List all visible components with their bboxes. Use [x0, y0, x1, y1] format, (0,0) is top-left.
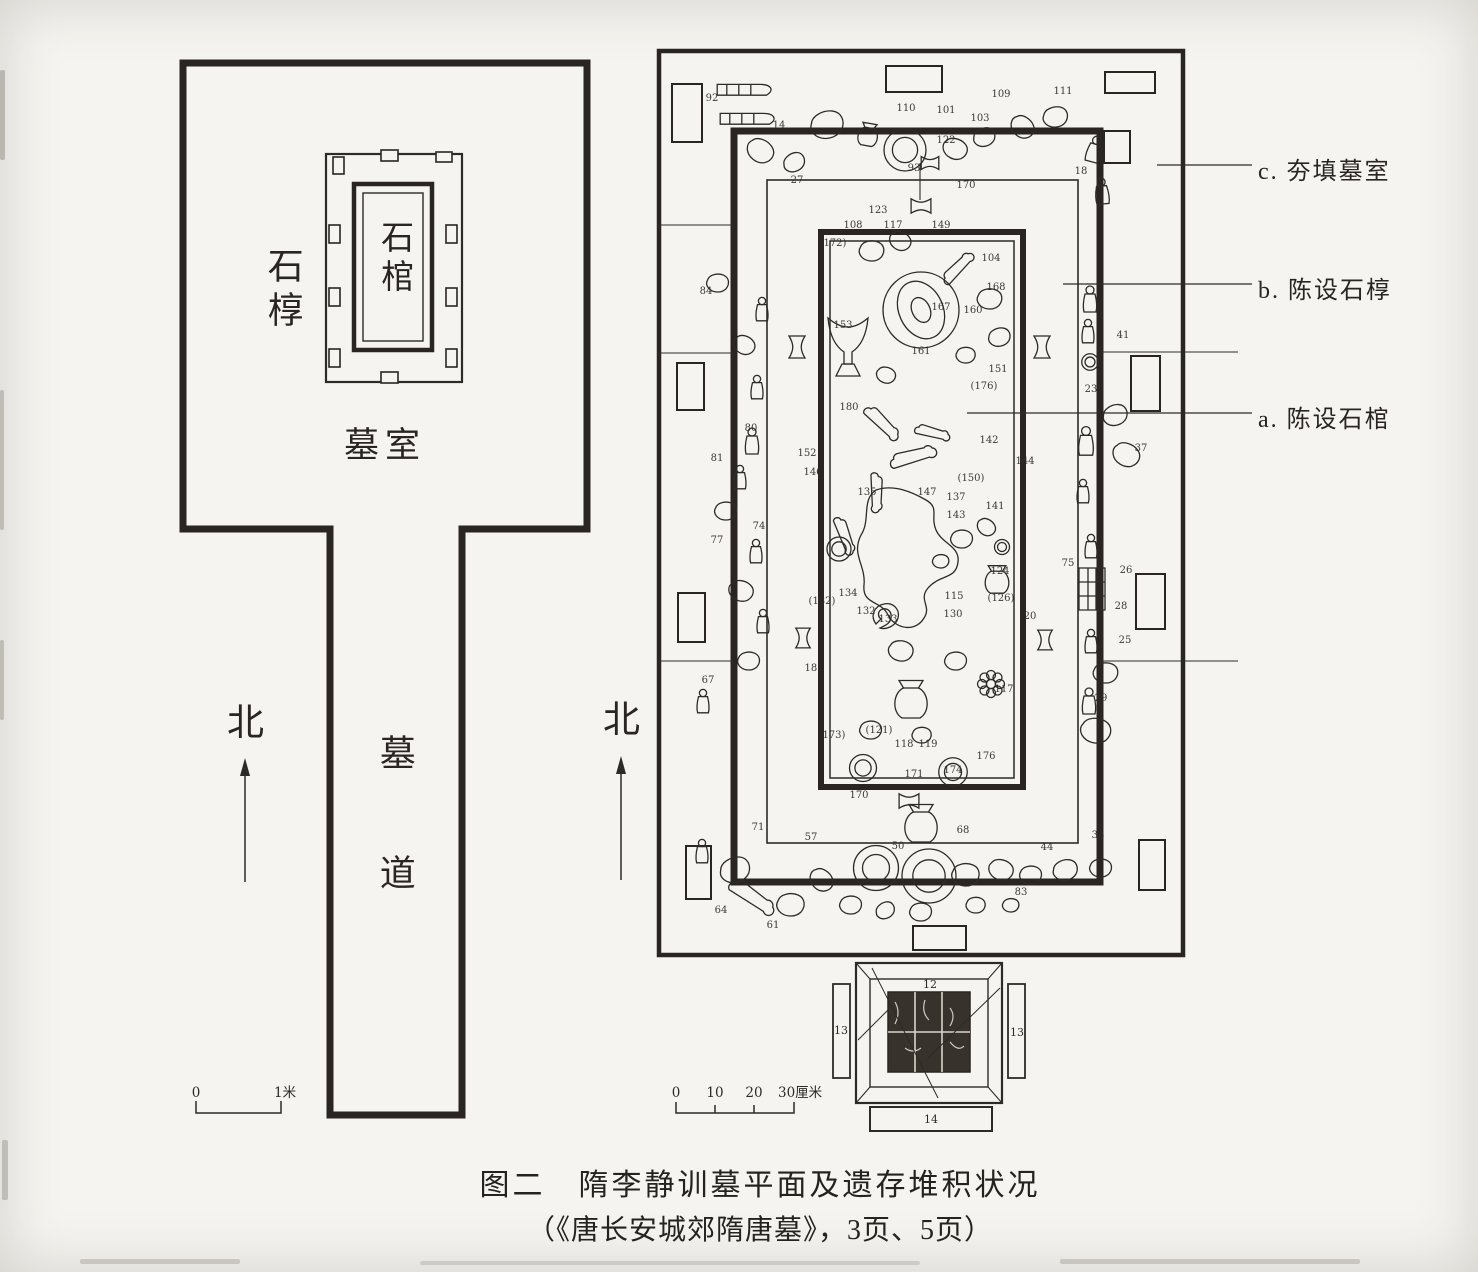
artifact-number: 146 — [803, 467, 822, 478]
scan-bottom-mark — [80, 1259, 240, 1264]
artifact-shape-sled — [720, 113, 774, 124]
artifact-shape-bone — [940, 247, 976, 288]
artifact-shape-blob — [807, 108, 846, 142]
label-stone-coffin: 石棺 — [376, 220, 411, 298]
artifact-number: 103 — [970, 113, 989, 124]
gate-number-bottom: 14 — [924, 1113, 938, 1126]
artifact-number: 130 — [943, 609, 962, 620]
artifact-shape-bowtie — [796, 628, 810, 648]
scanned-figure-page: 0 1米 — [0, 0, 1478, 1272]
artifact-number: 161 — [911, 346, 930, 357]
left-scale-bar: 0 1米 — [192, 1085, 297, 1113]
scan-edge-mark — [0, 390, 4, 530]
artifact-shape-figurine — [1077, 479, 1089, 502]
artifact-number: 14 — [773, 120, 786, 131]
artifact-number: 83 — [1015, 887, 1028, 898]
artifact-number: 117 — [883, 220, 902, 231]
artifact-number: 109 — [991, 89, 1010, 100]
artifact-shape-figurine — [1083, 286, 1096, 312]
artifact-number: 27 — [791, 175, 804, 186]
artifact-number: 18 — [1075, 166, 1088, 177]
artifact-number: 117 — [994, 684, 1013, 695]
artifact-shape-figurine — [1079, 427, 1094, 456]
annotation-c-rammed-fill-chamber: c. 夯填墓室 — [1258, 151, 1391, 186]
artifact-shape-blob — [1078, 716, 1112, 746]
label-stone-outer-coffin: 石椁 — [263, 247, 301, 335]
artifact-number: 152 — [797, 448, 816, 459]
artifact-shape-blob — [974, 515, 999, 539]
artifact-shape-pot — [895, 681, 927, 719]
artifact-shape-blob — [737, 652, 759, 670]
artifact-number: 160 — [963, 305, 982, 316]
annotation-a-stone-coffin: a. 陈设石棺 — [1258, 399, 1391, 434]
artifact-shape-blob — [909, 903, 931, 921]
artifact-number: (173) — [819, 730, 846, 741]
artifact-number: (182) — [809, 596, 836, 607]
artifact-number: 118 — [894, 739, 913, 750]
artifact-shape-bone — [859, 403, 905, 442]
artifact-number: 77 — [711, 535, 724, 546]
artifact-number: 34 — [1092, 830, 1105, 841]
artifact-number: 170 — [849, 790, 868, 801]
label-tomb-chamber: 墓室 — [344, 428, 426, 465]
artifact-number: 124 — [990, 566, 1009, 577]
artifact-number: 115 — [944, 591, 963, 602]
artifact-shape-bowtie — [921, 157, 939, 170]
artifact-shape-figurine — [1082, 319, 1094, 342]
artifact-shape-figurine — [696, 839, 708, 862]
artifact-number: (126) — [988, 593, 1015, 604]
artifact-shape-blob — [1002, 899, 1019, 912]
artifact-number: 61 — [767, 920, 780, 931]
artifact-shape-sled — [717, 84, 771, 95]
artifact-shape-bone — [914, 424, 951, 441]
figure-caption: 图二 隋李静训墓平面及遗存堆积状况 （《唐长安城郊隋唐墓》，3页、5页） — [360, 1160, 1160, 1248]
left-scale-0: 0 — [192, 1085, 201, 1101]
artifact-shape-blob — [742, 134, 777, 168]
artifact-shape-figurine — [756, 297, 768, 320]
artifact-number: 41 — [1117, 330, 1130, 341]
artifact-number: 142 — [979, 435, 998, 446]
artifact-number: 153 — [833, 320, 852, 331]
tomb-plans-drawing: 0 1米 — [0, 0, 1478, 1272]
artifact-shape-blob — [780, 149, 808, 176]
figure-caption-source: （《唐长安城郊隋唐墓》，3页、5页） — [360, 1208, 1160, 1248]
artifact-shape-pot — [857, 122, 880, 148]
artifact-number: 20 — [1024, 611, 1037, 622]
artifact-number: 44 — [1041, 842, 1054, 853]
artifact-number: 132 — [856, 606, 875, 617]
artifact-number: 171 — [904, 769, 923, 780]
right-plan: 0 10 20 30厘米 12 13 13 14 — [616, 51, 1252, 1131]
gate-number-right: 13 — [1010, 1026, 1024, 1039]
artifact-number: 151 — [988, 364, 1007, 375]
artifact-number: 92 — [706, 93, 719, 104]
artifact-shape-blob — [950, 530, 972, 548]
artifact-number: 180 — [839, 402, 858, 413]
artifact-number: (172) — [820, 238, 847, 249]
artifact-number: 104 — [981, 253, 1000, 264]
artifact-shape-figurine — [1085, 534, 1097, 557]
artifact-number: 147 — [917, 487, 936, 498]
artifact-number: 176 — [976, 751, 995, 762]
scan-edge-mark — [0, 640, 4, 720]
figure-caption-title: 图二 隋李静训墓平面及遗存堆积状况 — [360, 1160, 1160, 1204]
north-arrow-right — [616, 756, 626, 880]
artifact-number: 25 — [1119, 635, 1132, 646]
artifact-shape-circle2 — [1082, 354, 1099, 371]
right-outer-chamber-wall — [659, 51, 1183, 955]
artifact-number: 37 — [1135, 443, 1148, 454]
artifact-number: 143 — [946, 510, 965, 521]
artifact-number: 29 — [1095, 693, 1108, 704]
artifact-number: 181 — [804, 663, 823, 674]
gate-number-top: 12 — [923, 978, 937, 991]
scan-bottom-mark — [1060, 1259, 1360, 1264]
stone-gate: 12 13 13 14 — [833, 963, 1025, 1131]
artifact-shape-blob — [986, 326, 1012, 349]
artifact-shape-figurine — [1085, 629, 1097, 652]
artifact-number: 170 — [956, 180, 975, 191]
artifact-number: 135 — [857, 487, 876, 498]
artifact-shape-blob — [1100, 402, 1130, 429]
artifact-number: 67 — [702, 675, 715, 686]
artifact-number: 57 — [805, 832, 818, 843]
artifact-shape-blob — [932, 555, 949, 568]
artifact-number: 108 — [843, 220, 862, 231]
artifact-number: 93 — [908, 163, 921, 174]
artifact-shape-blob — [873, 899, 898, 922]
scan-edge-mark — [2, 1140, 8, 1200]
right-scale-0: 0 — [672, 1085, 681, 1101]
artifact-number: 111 — [1053, 86, 1072, 97]
artifact-shape-bowtie — [1034, 336, 1050, 358]
scan-bottom-mark — [420, 1261, 920, 1265]
artifact-number: 50 — [892, 841, 905, 852]
artifact-number: 23 — [1085, 384, 1098, 395]
artifact-shapes-layer — [696, 84, 1144, 922]
artifact-number: (150) — [958, 473, 985, 484]
artifact-shape-figurine — [751, 375, 763, 398]
artifact-number: 75 — [1062, 558, 1075, 569]
label-north-right: 北 — [603, 702, 640, 741]
right-scale-30cm: 30厘米 — [778, 1085, 823, 1101]
artifact-number: 68 — [957, 825, 970, 836]
artifact-shape-blob — [726, 577, 756, 604]
label-north-left: 北 — [227, 705, 264, 744]
artifact-number: 149 — [931, 220, 950, 231]
artifact-shape-circle2 — [995, 540, 1010, 555]
artifact-shape-blob — [777, 894, 805, 916]
artifact-number: 81 — [711, 453, 724, 464]
artifact-number: 84 — [700, 286, 713, 297]
artifact-shape-bowtie — [911, 199, 931, 213]
artifact-shape-blob — [859, 241, 884, 261]
artifact-shape-blob — [839, 896, 861, 914]
left-scale-1m: 1米 — [274, 1085, 297, 1101]
artifact-number: (121) — [866, 725, 893, 736]
artifact-number: 134 — [838, 588, 857, 599]
artifact-shape-blob — [956, 347, 975, 363]
artifact-number: 174 — [943, 765, 962, 776]
right-scale-20: 20 — [745, 1085, 762, 1101]
wall-niches — [672, 66, 1165, 950]
artifact-number: 123 — [868, 205, 887, 216]
artifact-number: 101 — [936, 105, 955, 116]
scan-edge-mark — [0, 70, 5, 160]
annotation-b-stone-outer-coffin: b. 陈设石椁 — [1258, 270, 1392, 305]
artifact-shape-blob — [1006, 111, 1038, 143]
right-scale-10: 10 — [706, 1085, 723, 1101]
artifact-shape-bone — [887, 438, 938, 475]
north-arrow-left — [240, 758, 250, 882]
artifact-number: 137 — [946, 492, 965, 503]
artifact-shape-blob — [1041, 105, 1069, 129]
artifact-number: 119 — [918, 739, 937, 750]
artifact-number: 141 — [985, 501, 1004, 512]
artifact-shape-blob — [944, 652, 966, 670]
artifact-number: 133 — [878, 614, 897, 625]
artifact-number: 26 — [1120, 565, 1133, 576]
artifact-shape-blob — [887, 639, 915, 663]
artifact-number: 144 — [1015, 456, 1034, 467]
right-scale-bar: 0 10 20 30厘米 — [672, 1085, 823, 1113]
artifact-number: (176) — [971, 381, 998, 392]
artifact-number: 74 — [753, 521, 766, 532]
artifact-shape-blob — [874, 364, 897, 385]
artifact-shape-bowtie — [1038, 630, 1052, 650]
gate-number-left: 13 — [834, 1024, 848, 1037]
artifact-shape-bowtie — [899, 794, 919, 808]
artifact-shape-figurine — [697, 689, 709, 712]
artifact-shape-bowtie — [789, 336, 805, 358]
artifact-shape-figurine — [750, 539, 762, 562]
label-tomb-passage: 墓道 — [375, 734, 413, 974]
artifact-number: 168 — [986, 282, 1005, 293]
artifact-number: 167 — [931, 302, 950, 313]
artifact-number: 110 — [896, 103, 915, 114]
artifact-number: 28 — [1115, 601, 1128, 612]
artifact-number: 80 — [745, 423, 758, 434]
artifact-number: 71 — [752, 822, 765, 833]
artifact-shape-blob — [966, 897, 985, 913]
artifact-shape-bone — [828, 515, 861, 557]
artifact-number: 122 — [936, 135, 955, 146]
artifact-number: 64 — [715, 905, 728, 916]
artifact-shape-circle2 — [902, 849, 956, 903]
artifact-shape-pot — [905, 805, 937, 843]
